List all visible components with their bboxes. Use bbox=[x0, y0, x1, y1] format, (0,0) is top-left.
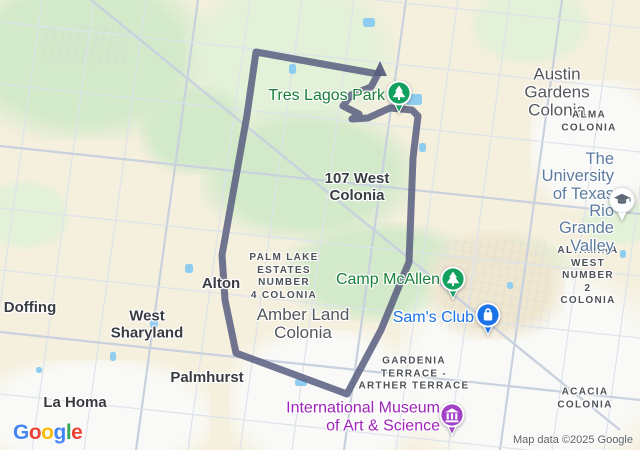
map-attribution: Map data ©2025 Google bbox=[513, 434, 633, 446]
camp-mcallen-label[interactable]: Camp McAllen bbox=[336, 271, 440, 289]
utrgv-label[interactable]: The University of Texas Rio Grande Valle… bbox=[542, 151, 614, 255]
tres-lagos-park-label[interactable]: Tres Lagos Park bbox=[268, 87, 385, 105]
international-museum-label[interactable]: International Museum of Art & Science bbox=[286, 399, 440, 434]
sams-club-pin[interactable] bbox=[473, 302, 503, 343]
google-logo-letter: o bbox=[41, 421, 53, 444]
google-logo-letter: e bbox=[71, 421, 82, 444]
map-canvas[interactable]: DoffingWest SharylandAltonPalmhurstLa Ho… bbox=[0, 0, 640, 450]
tres-lagos-park-pin[interactable] bbox=[384, 80, 414, 121]
camp-mcallen-pin[interactable] bbox=[438, 266, 468, 307]
google-logo-letter: G bbox=[13, 421, 29, 444]
utrgv-pin[interactable] bbox=[607, 187, 637, 228]
google-logo-letter: g bbox=[54, 421, 66, 444]
sams-club-label[interactable]: Sam's Club bbox=[393, 309, 474, 327]
museum-pin[interactable] bbox=[437, 402, 467, 443]
google-logo-letter: o bbox=[29, 421, 41, 444]
google-logo[interactable]: Google bbox=[13, 421, 82, 445]
route-direction-arrow bbox=[373, 61, 387, 76]
